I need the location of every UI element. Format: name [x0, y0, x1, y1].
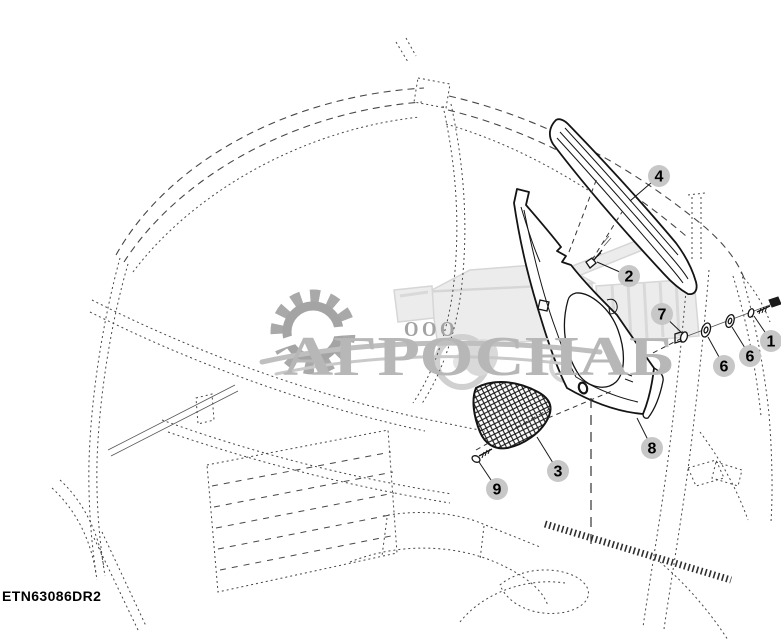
- callout-number-6: 6: [746, 349, 755, 366]
- callout-number-9: 9: [493, 482, 502, 499]
- callout-number-2: 2: [625, 269, 634, 286]
- callout-number-6: 6: [720, 359, 729, 376]
- part-screw-9: [471, 449, 492, 464]
- callout-number-1: 1: [767, 334, 776, 351]
- part-mesh-grille: [473, 382, 550, 448]
- part-code-label: ETN63086DR2: [2, 588, 101, 604]
- washer-6a: [700, 322, 712, 338]
- bolt-1: [747, 297, 781, 318]
- callout-number-4: 4: [655, 169, 664, 186]
- callout-number-8: 8: [648, 441, 657, 458]
- washer-6b: [724, 314, 735, 329]
- callout-number-3: 3: [554, 464, 563, 481]
- door-sill-hatch: [545, 524, 731, 580]
- callout-number-7: 7: [658, 307, 667, 324]
- watermark-company-name: АГРОСНАБ: [283, 326, 675, 388]
- parts-diagram-canvas: ООО АГРОСНАБ 427661839 ETN63086DR2: [0, 0, 781, 641]
